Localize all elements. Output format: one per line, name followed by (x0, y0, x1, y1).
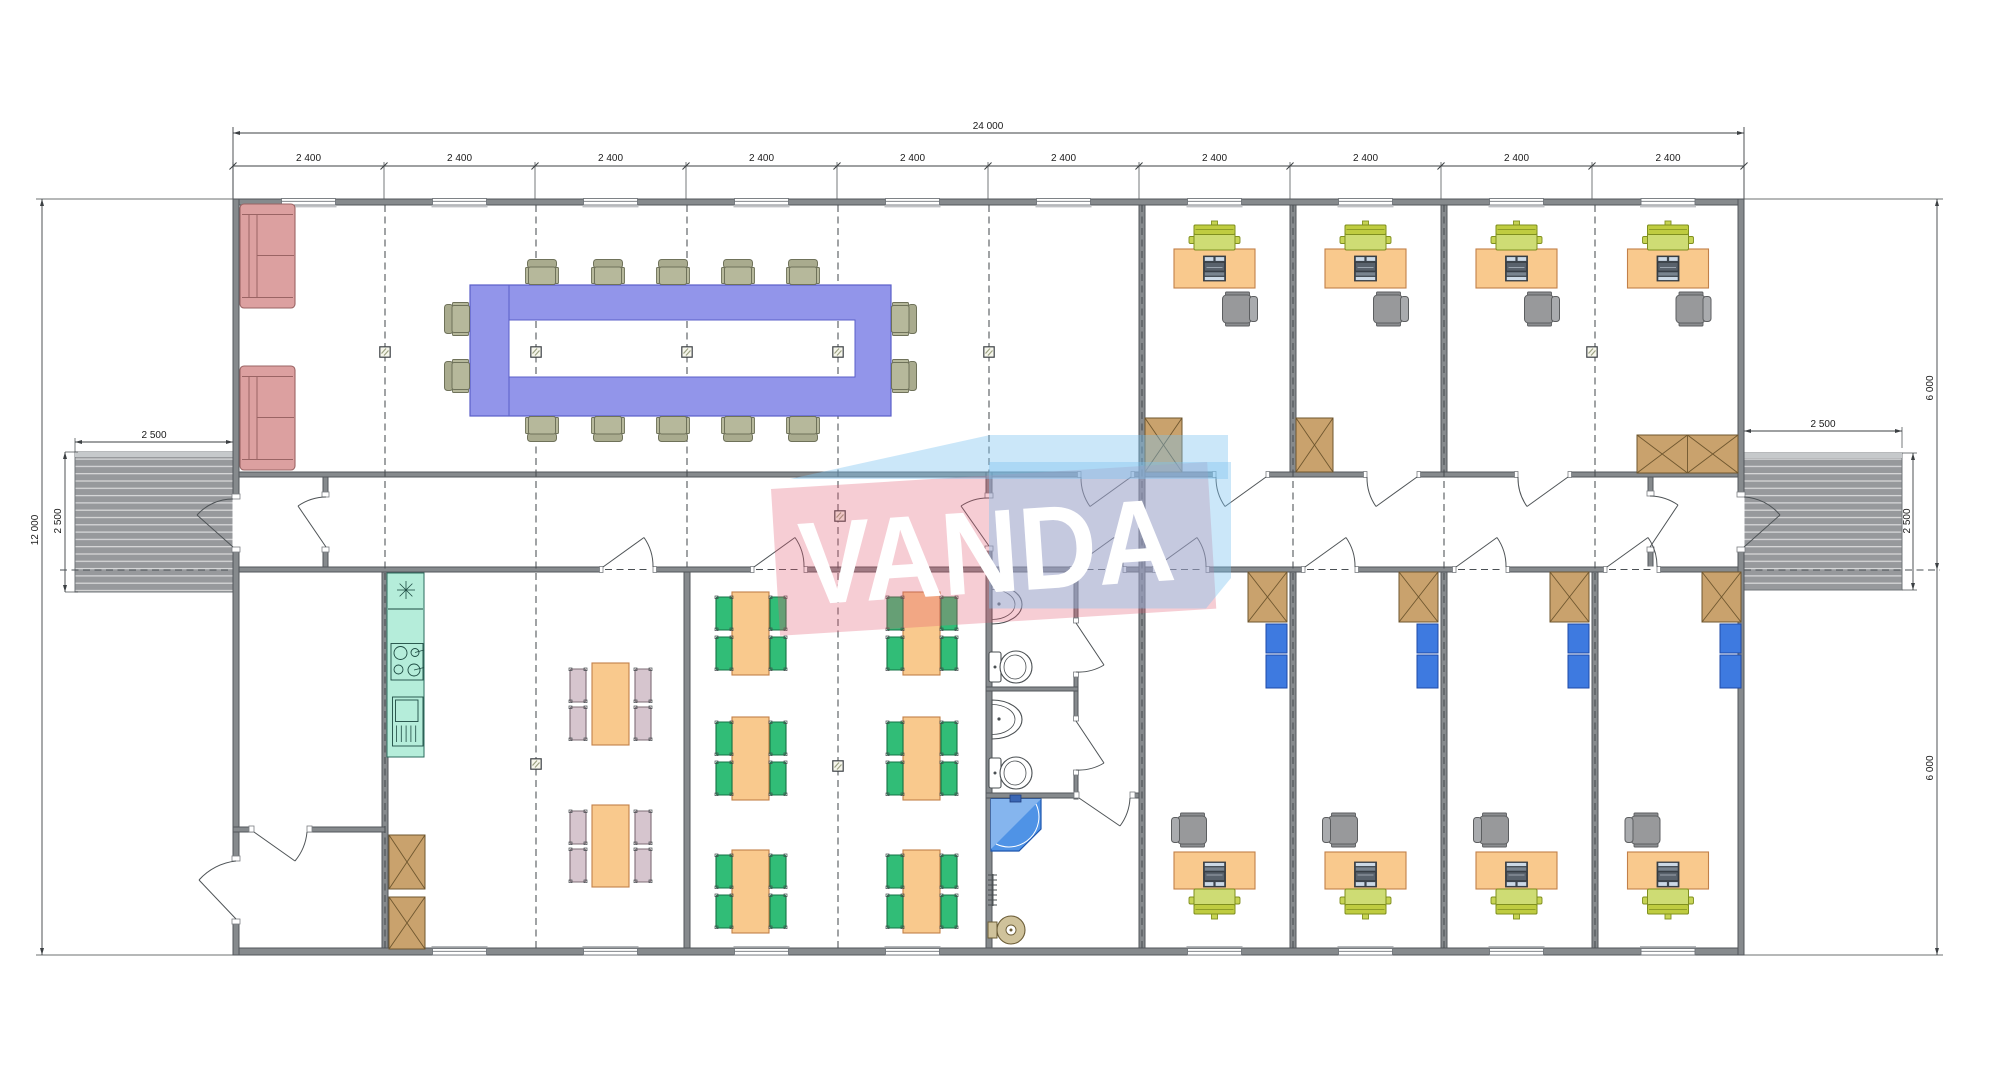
svg-text:2 400: 2 400 (1504, 153, 1529, 164)
svg-text:24 000: 24 000 (973, 121, 1004, 132)
svg-text:6 000: 6 000 (1925, 375, 1936, 400)
svg-text:2 400: 2 400 (447, 153, 472, 164)
svg-text:2 500: 2 500 (1810, 419, 1835, 430)
svg-text:2 500: 2 500 (1902, 508, 1913, 533)
svg-text:2 400: 2 400 (296, 153, 321, 164)
svg-text:2 400: 2 400 (1655, 153, 1680, 164)
svg-text:2 400: 2 400 (1353, 153, 1378, 164)
svg-text:2 400: 2 400 (1202, 153, 1227, 164)
svg-text:2 500: 2 500 (53, 508, 64, 533)
svg-text:VANDA: VANDA (795, 474, 1179, 631)
svg-text:2 400: 2 400 (900, 153, 925, 164)
svg-text:12 000: 12 000 (30, 514, 41, 545)
svg-text:2 400: 2 400 (1051, 153, 1076, 164)
svg-text:2 500: 2 500 (141, 430, 166, 441)
svg-text:2 400: 2 400 (598, 153, 623, 164)
svg-text:2 400: 2 400 (749, 153, 774, 164)
svg-text:6 000: 6 000 (1925, 755, 1936, 780)
